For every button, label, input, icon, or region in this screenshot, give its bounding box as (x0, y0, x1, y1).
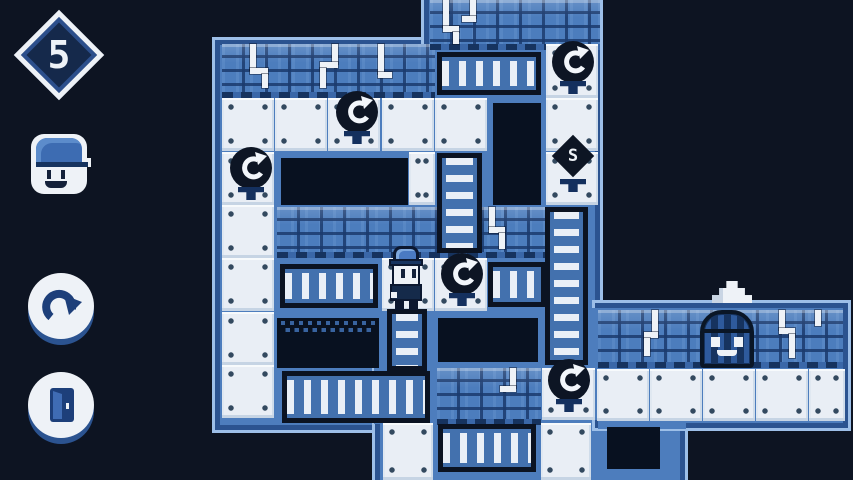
switch-pedestal (556, 399, 582, 412)
floor-tile (541, 423, 591, 480)
game-screen: S 5 (0, 0, 853, 480)
player-leg (395, 301, 404, 310)
floor-tile (383, 423, 433, 480)
player-hat (393, 246, 419, 260)
diamond-switch: S (552, 135, 594, 195)
level-number: 5 (14, 10, 104, 100)
switch-orb (336, 91, 378, 133)
wall-pipe (462, 16, 476, 22)
ladder-vertical (387, 309, 427, 371)
wall-pipe (378, 72, 392, 78)
floor-tile (382, 98, 434, 151)
switch-orb (552, 41, 594, 83)
wall-pipe (510, 368, 516, 388)
door-eye (734, 337, 743, 347)
rotate-switch[interactable] (552, 41, 594, 97)
floor-tile (703, 369, 755, 421)
portrait-face (38, 169, 80, 190)
portrait-eye (61, 170, 65, 179)
exit-level-button[interactable] (28, 372, 94, 438)
ladder-horizontal (488, 262, 546, 307)
ladder-horizontal (282, 371, 430, 423)
pit-hole (281, 158, 408, 205)
rotate-switch[interactable] (336, 91, 378, 147)
playfield[interactable]: S (0, 0, 853, 480)
floor-tile (650, 369, 702, 421)
undo-button[interactable] (28, 273, 94, 339)
floor-tile (756, 369, 808, 421)
ladder-horizontal (437, 52, 541, 95)
ladder-horizontal (438, 424, 536, 472)
wall-pipe (499, 233, 505, 249)
floor-tile (597, 369, 649, 421)
wall-pipe (779, 310, 785, 330)
switch-pedestal (344, 131, 370, 144)
wall-pipe (500, 386, 516, 392)
wall-pipe (320, 68, 326, 88)
ladder-vertical (437, 153, 482, 253)
rotate-arrow-icon (441, 253, 483, 295)
wall-pipe (250, 44, 256, 70)
pit-hole (607, 427, 660, 469)
rotate-arrow-icon (552, 41, 594, 83)
brick-wall (437, 368, 541, 425)
rotate-arrow-icon (548, 359, 590, 401)
floor-tile (222, 365, 274, 418)
switch-pedestal (449, 293, 475, 306)
portrait-mouth (45, 181, 67, 188)
rotate-arrow-icon (230, 147, 272, 189)
wall-pipe (453, 32, 459, 44)
rotate-switch[interactable] (548, 359, 590, 415)
ladder-horizontal (280, 264, 378, 308)
portrait-cap (36, 138, 82, 162)
pit-hole (438, 318, 538, 362)
door-mouth (717, 350, 737, 356)
exit-door[interactable] (700, 310, 754, 368)
portrait-eye (47, 170, 51, 179)
rotate-switch[interactable] (441, 253, 483, 309)
floor-tile (435, 98, 487, 151)
floor-tile (275, 98, 327, 151)
switch-orb (230, 147, 272, 189)
door-eye (711, 337, 720, 347)
wall-pipe (815, 310, 821, 326)
wall-pipe (378, 44, 384, 74)
level-badge: 5 (14, 10, 104, 100)
diamond-pedestal (560, 179, 586, 192)
ladder-vertical (545, 207, 588, 365)
floor-tile (222, 205, 274, 258)
floor-tile (809, 369, 845, 421)
pit-hole (493, 103, 541, 205)
rotate-switch[interactable] (230, 147, 272, 203)
redo-arrow-icon (28, 273, 94, 339)
player-eye (401, 269, 405, 278)
portrait-brim-line (36, 162, 88, 167)
floor-tile (222, 98, 274, 151)
switch-orb (548, 359, 590, 401)
wall-pipe (789, 334, 795, 358)
floor-tile (222, 258, 274, 311)
mound-marker-icon (712, 281, 752, 303)
player-body (390, 284, 422, 301)
door-icon (28, 372, 94, 438)
wall-pipe (644, 338, 650, 356)
wall-pipe (652, 310, 658, 334)
player-face (392, 266, 420, 284)
wall-pipe (332, 44, 338, 64)
wall-pipe (443, 0, 449, 28)
floor-tile (409, 152, 435, 205)
rotate-arrow-icon (336, 91, 378, 133)
door-band (704, 329, 750, 333)
wall-pipe (262, 74, 268, 88)
wall-pipe (489, 207, 495, 229)
pit-hole (277, 318, 379, 368)
switch-pedestal (238, 187, 264, 200)
diamond-label: S (552, 135, 594, 177)
player-leg (409, 301, 418, 310)
switch-orb (441, 253, 483, 295)
player-character[interactable] (386, 246, 426, 310)
floor-tile (222, 312, 274, 365)
player-eye (412, 269, 416, 278)
player-cap-brim (389, 259, 423, 266)
switch-pedestal (560, 81, 586, 94)
player-hand (391, 292, 397, 298)
player-portrait (27, 132, 93, 200)
